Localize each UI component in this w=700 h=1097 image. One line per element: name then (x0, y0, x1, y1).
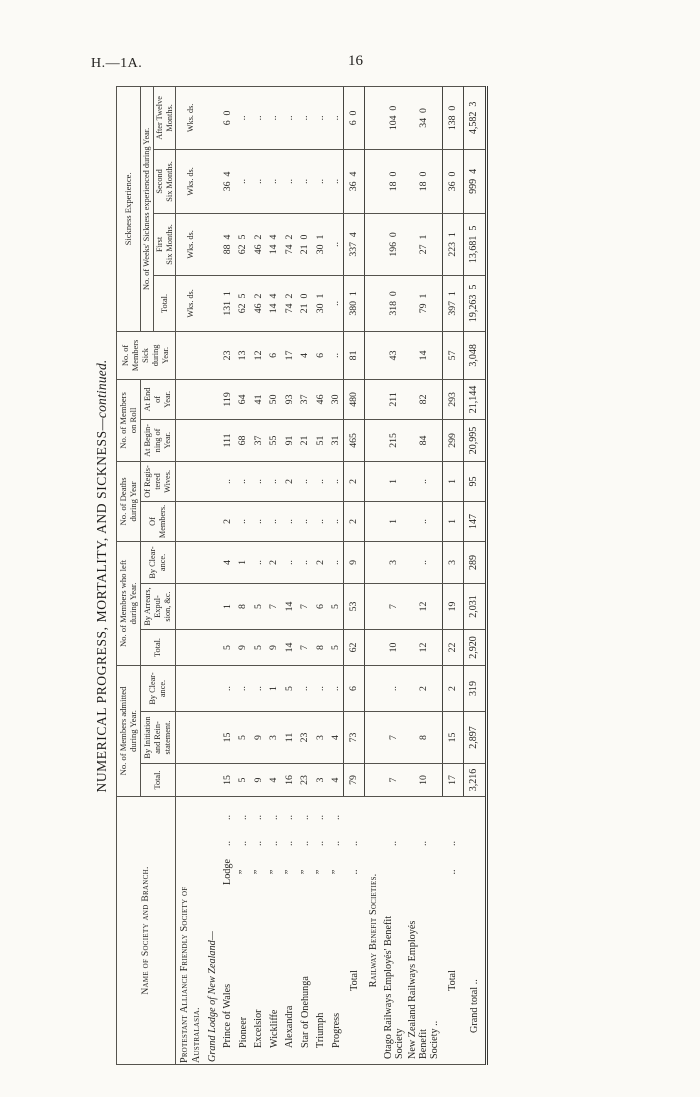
cell: .. (267, 149, 282, 213)
table-row: New Zealand Railways Employés Benefit So… (406, 86, 442, 1064)
row-label: Excelsior”.... (251, 797, 266, 1065)
table-row: Railway Benefit Societies. (365, 86, 382, 1064)
table-row: Total....17152221931129929357397 1223 13… (442, 86, 463, 1064)
cell (365, 764, 382, 797)
cell: 1 (442, 461, 463, 501)
cell: 289 (463, 541, 486, 583)
cell: 55 (267, 419, 282, 461)
cell: 4 (220, 541, 235, 583)
cell: 18 0 (406, 149, 442, 213)
cell: 11 (282, 712, 297, 764)
col-header-members-sick: No. of Members Sick during Year. (117, 331, 176, 379)
cell: .. (298, 541, 313, 583)
cell: .. (220, 665, 235, 711)
statistics-table: Name of Society and Branch. No. of Membe… (116, 86, 488, 1065)
row-label-text: .. (300, 820, 311, 846)
cell: 4 (267, 764, 282, 797)
cell: 2 (220, 501, 235, 541)
cell: 7 (381, 764, 405, 797)
row-label: Total.... (344, 797, 365, 1065)
table-row: Excelsior”....99..55......37411246 246 2… (251, 86, 266, 1064)
col-group-roll: No. of Members on Roll (117, 379, 141, 461)
col-header-sickness-first-six: First Six Months. (153, 213, 176, 275)
cell: 9 (236, 629, 251, 665)
cell: .. (251, 665, 266, 711)
cell (365, 583, 382, 629)
cell: .. (251, 501, 266, 541)
cell: 7 (381, 712, 405, 764)
cell: 2 (313, 541, 328, 583)
row-label-text: .. (388, 820, 399, 846)
cell: 43 (381, 331, 405, 379)
col-header-roll-beginning: At Begin- ning of Year. (140, 419, 176, 461)
cell: 119 (220, 379, 235, 419)
row-label-text: Otago Railways Employés' Benefit Society (383, 898, 405, 1063)
cell: .. (406, 461, 442, 501)
cell: 1 (267, 665, 282, 711)
cell: 211 (381, 379, 405, 419)
row-label-text: Total (349, 898, 360, 1063)
row-label-text: Lodge (222, 846, 233, 898)
col-subgroup-weeks-sickness: No. of Weeks' Sickness experienced durin… (140, 86, 153, 331)
cell: .. (236, 461, 251, 501)
cell: 64 (236, 379, 251, 419)
cell: 8 (313, 629, 328, 665)
cell: 380 1 (344, 275, 365, 331)
cell: 57 (442, 331, 463, 379)
row-label-text: .. (253, 798, 264, 820)
row-label: Total.... (442, 797, 463, 1065)
cell: 51 (313, 419, 328, 461)
col-group-admitted: No. of Members admitted during Year. (117, 665, 141, 796)
col-header-left-total: Total. (140, 629, 176, 665)
cell (176, 331, 206, 379)
row-label-text: .. (222, 820, 233, 846)
cell: .. (282, 86, 297, 149)
cell: .. (328, 213, 343, 275)
table-row: Pioneer”....55..981....68641362 562 5...… (236, 86, 251, 1064)
cell (176, 379, 206, 419)
cell: 17 (442, 764, 463, 797)
table-row: Triumph”....33..862....5146630 130 1.... (313, 86, 328, 1064)
cell: 91 (282, 419, 297, 461)
cell (176, 419, 206, 461)
table-row: Grand total ..3,2162,8973192,9202,031289… (463, 86, 486, 1064)
row-label-text: ” (253, 846, 264, 898)
cell: 4 (328, 764, 343, 797)
cell: .. (236, 86, 251, 149)
cell: .. (282, 501, 297, 541)
cell: 1 (381, 461, 405, 501)
cell (365, 629, 382, 665)
cell: 465 (344, 419, 365, 461)
cell: 17 (282, 331, 297, 379)
row-label-text: .. (331, 820, 342, 846)
cell: 12 (251, 331, 266, 379)
row-label-text: Grand total .. (469, 979, 480, 1063)
cell: 8 (236, 583, 251, 629)
cell: 21,144 (463, 379, 486, 419)
cell: 196 0 (381, 213, 405, 275)
cell: 480 (344, 379, 365, 419)
cell: 6 (344, 665, 365, 711)
cell: 5 (251, 583, 266, 629)
cell (365, 419, 382, 461)
cell: 293 (442, 379, 463, 419)
table-row: Total....79736625392246548081380 1337 43… (344, 86, 365, 1064)
cell: 34 0 (406, 86, 442, 149)
cell: 5 (328, 583, 343, 629)
cell (206, 213, 220, 275)
row-label: Prince of WalesLodge.... (220, 797, 235, 1065)
cell: 79 (344, 764, 365, 797)
cell: 2,031 (463, 583, 486, 629)
cell: Wks. ds. (176, 275, 206, 331)
cell: .. (313, 461, 328, 501)
cell: .. (267, 461, 282, 501)
cell: .. (328, 461, 343, 501)
cell (206, 86, 220, 149)
cell: .. (328, 665, 343, 711)
cell: 7 (298, 629, 313, 665)
table-title-main: NUMERICAL PROGRESS, MORTALITY, AND SICKN… (94, 430, 109, 792)
col-group-sickness-experience: Sickness Experience. (117, 86, 141, 331)
cell: 95 (463, 461, 486, 501)
cell (365, 331, 382, 379)
row-label: Triumph”.... (313, 797, 328, 1065)
cell: .. (267, 86, 282, 149)
cell: .. (220, 461, 235, 501)
cell (365, 712, 382, 764)
cell: .. (298, 501, 313, 541)
cell (365, 213, 382, 275)
row-label: Protestant Alliance Friendly Society of … (176, 797, 206, 1065)
cell: 3 (267, 712, 282, 764)
cell: 15 (220, 712, 235, 764)
row-label-text: ” (238, 846, 249, 898)
cell (206, 149, 220, 213)
col-header-admitted-total: Total. (140, 764, 176, 797)
cell: 2 (344, 501, 365, 541)
cell (206, 764, 220, 797)
row-label: Otago Railways Employés' Benefit Society… (381, 797, 405, 1065)
cell (206, 275, 220, 331)
row-label-text: .. (447, 846, 458, 898)
cell: 7 (267, 583, 282, 629)
cell: .. (313, 149, 328, 213)
cell: .. (328, 331, 343, 379)
row-label-text: ” (269, 846, 280, 898)
row-label-text: .. (331, 798, 342, 820)
cell: 46 (313, 379, 328, 419)
cell: .. (298, 665, 313, 711)
cell: 88 4 (220, 213, 235, 275)
col-header-admitted-initiation: By Initiation and Rein- statement. (140, 712, 176, 764)
cell: 62 5 (236, 213, 251, 275)
row-label-text: .. (315, 820, 326, 846)
table-title: NUMERICAL PROGRESS, MORTALITY, AND SICKN… (92, 87, 116, 1065)
cell: 74 2 (282, 275, 297, 331)
row-label-text: .. (269, 820, 280, 846)
cell (365, 541, 382, 583)
row-label-text: Protestant Alliance Friendly Society of … (179, 887, 203, 1063)
cell (176, 712, 206, 764)
col-header-sickness-total: Total. (153, 275, 176, 331)
cell: 13 (236, 331, 251, 379)
cell: 23 (220, 331, 235, 379)
cell: .. (251, 149, 266, 213)
cell (206, 541, 220, 583)
cell: 18 0 (381, 149, 405, 213)
cell: 21 0 (298, 275, 313, 331)
cell: .. (282, 541, 297, 583)
table-body: Protestant Alliance Friendly Society of … (176, 86, 487, 1064)
cell (176, 461, 206, 501)
cell: 16 (282, 764, 297, 797)
col-header-left-clearance: By Clear- ance. (140, 541, 176, 583)
cell: 37 (251, 419, 266, 461)
cell: Wks. ds. (176, 213, 206, 275)
cell (206, 379, 220, 419)
row-label-text: .. (238, 798, 249, 820)
cell (365, 461, 382, 501)
cell: 37 (298, 379, 313, 419)
cell: 23 (298, 712, 313, 764)
cell (206, 331, 220, 379)
page-number: 16 (348, 53, 363, 70)
cell: 3 (313, 764, 328, 797)
cell: .. (313, 86, 328, 149)
row-label-text: Triumph (315, 898, 326, 1063)
doc-reference: H.—1A. (91, 56, 142, 72)
cell: 2,897 (463, 712, 486, 764)
col-group-left: No. of Members who left during Year. (117, 541, 141, 665)
row-label-text: Pioneer (238, 898, 249, 1063)
cell: 93 (282, 379, 297, 419)
col-header-deaths-wives: Of Regis- tered Wives. (140, 461, 176, 501)
cell: .. (236, 665, 251, 711)
cell: 3,048 (463, 331, 486, 379)
cell: .. (267, 501, 282, 541)
cell (206, 629, 220, 665)
cell: 337 4 (344, 213, 365, 275)
row-label-text: Wickliffe (269, 898, 280, 1063)
cell (176, 541, 206, 583)
col-header-sickness-after-twelve: After Twelve Months. (153, 86, 176, 149)
cell: 9 (267, 629, 282, 665)
cell: 62 5 (236, 275, 251, 331)
cell: 27 1 (406, 213, 442, 275)
cell: 397 1 (442, 275, 463, 331)
cell: .. (313, 501, 328, 541)
cell: 3 (313, 712, 328, 764)
cell: 21 (298, 419, 313, 461)
table-row: Progress”....44..55......3130.......... (328, 86, 343, 1064)
cell (176, 665, 206, 711)
cell: 19,263 5 (463, 275, 486, 331)
cell: 12 (406, 629, 442, 665)
cell (206, 712, 220, 764)
cell: 14 4 (267, 213, 282, 275)
cell (176, 583, 206, 629)
cell (365, 379, 382, 419)
cell: .. (251, 461, 266, 501)
cell: 4 (328, 712, 343, 764)
cell: 1 (381, 501, 405, 541)
row-label: Grand Lodge of New Zealand— (206, 797, 220, 1065)
cell: 14 (282, 583, 297, 629)
cell: 131 1 (220, 275, 235, 331)
cell: 21 0 (298, 213, 313, 275)
cell: 111 (220, 419, 235, 461)
cell (206, 665, 220, 711)
rotated-table-area: NUMERICAL PROGRESS, MORTALITY, AND SICKN… (92, 87, 492, 1065)
row-label-text: .. (300, 798, 311, 820)
cell: 36 0 (442, 149, 463, 213)
cell (176, 629, 206, 665)
cell: 9 (344, 541, 365, 583)
cell: 7 (298, 583, 313, 629)
cell: .. (298, 86, 313, 149)
row-label-text: Grand Lodge of New Zealand— (207, 931, 218, 1062)
cell (206, 461, 220, 501)
row-label: Star of Onehunga”.... (298, 797, 313, 1065)
table-row: Otago Railways Employés' Benefit Society… (381, 86, 405, 1064)
cell: .. (236, 501, 251, 541)
cell: 6 (267, 331, 282, 379)
row-label-text: Prince of Wales (222, 898, 233, 1063)
cell: .. (251, 541, 266, 583)
cell: 2 (442, 665, 463, 711)
cell: 50 (267, 379, 282, 419)
row-label-text: .. (418, 820, 429, 846)
cell: 10 (381, 629, 405, 665)
cell: 46 2 (251, 275, 266, 331)
cell: 30 (328, 379, 343, 419)
cell: 1 (220, 583, 235, 629)
cell: 6 0 (344, 86, 365, 149)
row-label-text: Railway Benefit Societies. (368, 874, 379, 988)
row-label-text: Progress (331, 898, 342, 1063)
cell: 14 (406, 331, 442, 379)
cell: .. (298, 149, 313, 213)
cell: 2 (406, 665, 442, 711)
cell: .. (406, 541, 442, 583)
cell: 5 (220, 629, 235, 665)
cell (206, 501, 220, 541)
col-group-deaths: No. of Deaths during Year (117, 461, 141, 541)
row-label-text: ” (300, 846, 311, 898)
row-label-text: .. (447, 820, 458, 846)
cell: 68 (236, 419, 251, 461)
cell: 10 (406, 764, 442, 797)
cell: 74 2 (282, 213, 297, 275)
cell: 31 (328, 419, 343, 461)
cell: 84 (406, 419, 442, 461)
cell: 1 (236, 541, 251, 583)
cell: 6 0 (220, 86, 235, 149)
cell: 4 (298, 331, 313, 379)
cell: 1 (442, 501, 463, 541)
cell: 36 4 (220, 149, 235, 213)
row-label-text: .. (284, 820, 295, 846)
cell: .. (313, 665, 328, 711)
cell: 223 1 (442, 213, 463, 275)
row-label-text: .. (284, 798, 295, 820)
row-label-text: .. (349, 846, 360, 898)
row-label-text: Alexandra (284, 898, 295, 1063)
cell: 19 (442, 583, 463, 629)
cell (206, 419, 220, 461)
cell: 53 (344, 583, 365, 629)
cell: 30 1 (313, 275, 328, 331)
row-label: Progress”.... (328, 797, 343, 1065)
cell: 46 2 (251, 213, 266, 275)
cell: 36 4 (344, 149, 365, 213)
cell: 8 (406, 712, 442, 764)
row-label-text: New Zealand Railways Employés Benefit So… (407, 898, 440, 1063)
cell: .. (282, 149, 297, 213)
cell: 138 0 (442, 86, 463, 149)
cell: 319 (463, 665, 486, 711)
cell (176, 501, 206, 541)
cell: .. (328, 275, 343, 331)
row-label-text: ” (331, 846, 342, 898)
cell: .. (298, 461, 313, 501)
cell: 23 (298, 764, 313, 797)
cell: .. (381, 665, 405, 711)
col-header-roll-end: At End of Year. (140, 379, 176, 419)
cell: 15 (220, 764, 235, 797)
cell: 5 (282, 665, 297, 711)
row-label: Pioneer”.... (236, 797, 251, 1065)
cell: 299 (442, 419, 463, 461)
col-header-sickness-second-six: Second Six Months. (153, 149, 176, 213)
cell: 20,995 (463, 419, 486, 461)
col-header-deaths-members: Of Members. (140, 501, 176, 541)
cell: 104 0 (381, 86, 405, 149)
row-label: Alexandra”.... (282, 797, 297, 1065)
table-row: Alexandra”....161151414....291931774 274… (282, 86, 297, 1064)
row-label: Wickliffe”.... (267, 797, 282, 1065)
cell: 73 (344, 712, 365, 764)
row-label-text: .. (222, 798, 233, 820)
cell: 7 (381, 583, 405, 629)
cell (365, 149, 382, 213)
cell: Wks. ds. (176, 86, 206, 149)
cell: .. (328, 86, 343, 149)
row-label-text: .. (253, 820, 264, 846)
cell: .. (328, 541, 343, 583)
cell: .. (328, 149, 343, 213)
cell (365, 275, 382, 331)
cell: 3,216 (463, 764, 486, 797)
row-label-text: Excelsior (253, 898, 264, 1063)
cell: 13,681 5 (463, 213, 486, 275)
row-label: Grand total .. (463, 797, 486, 1065)
cell: 6 (313, 331, 328, 379)
cell: 15 (442, 712, 463, 764)
cell: 147 (463, 501, 486, 541)
cell: 4,582 3 (463, 86, 486, 149)
cell: 14 (282, 629, 297, 665)
cell: .. (251, 86, 266, 149)
cell: 62 (344, 629, 365, 665)
table-row: Grand Lodge of New Zealand— (206, 86, 220, 1064)
cell: 2 (282, 461, 297, 501)
cell: 2,920 (463, 629, 486, 665)
row-label-text: .. (315, 798, 326, 820)
